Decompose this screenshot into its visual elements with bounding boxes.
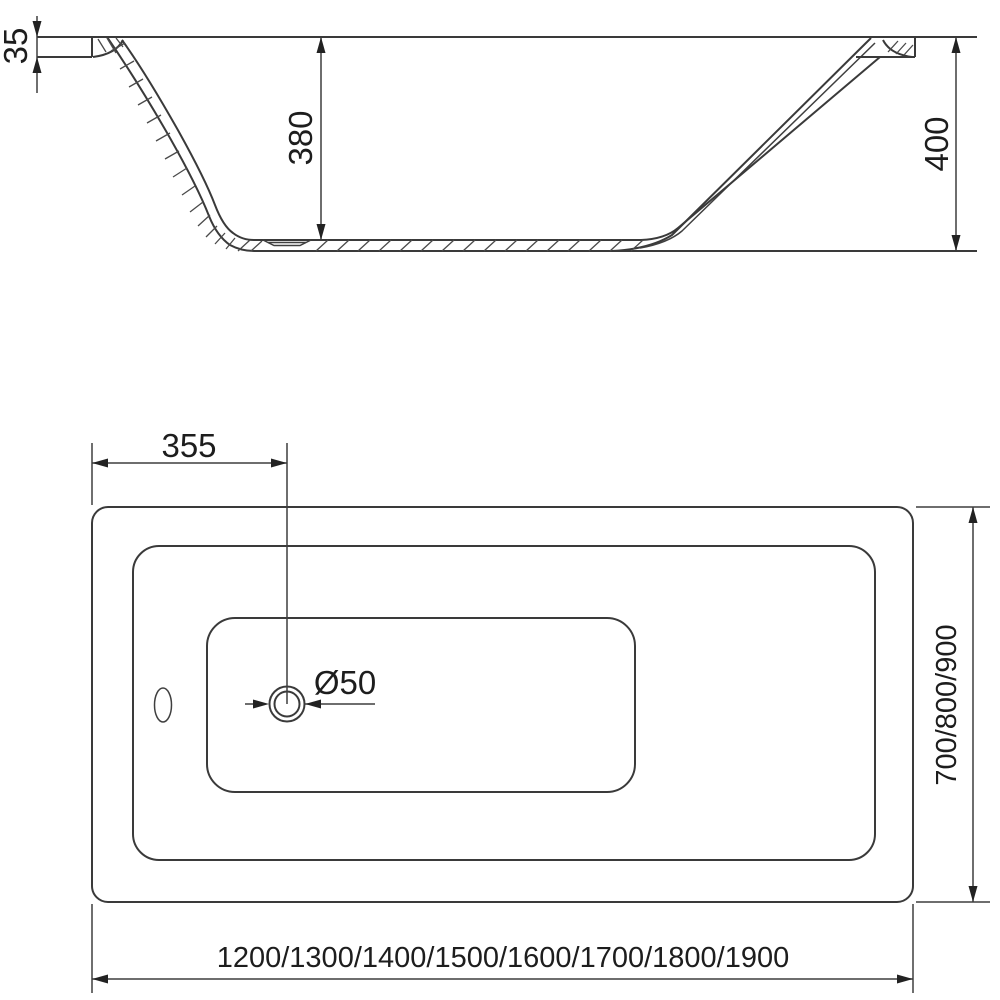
tub-outer-shell [107, 37, 977, 251]
dimension-drain-offset: 355 [92, 427, 287, 505]
tub-outer-rim-outline [92, 507, 913, 902]
section-hatching [98, 38, 913, 251]
dimension-length-options: 1200/1300/1400/1500/1600/1700/1800/1900 [92, 904, 913, 993]
overflow-hole [155, 688, 172, 722]
tub-inner-rim-outline [133, 546, 875, 860]
dimension-width-options: 700/800/900 [916, 507, 990, 902]
dimension-drain-diameter: Ø50 [245, 664, 376, 709]
dimension-rim-thickness: 35 [0, 16, 42, 93]
side-section-view: 35 380 400 [0, 16, 977, 251]
length-options-label: 1200/1300/1400/1500/1600/1700/1800/1900 [217, 942, 790, 974]
drain-offset-label: 355 [161, 427, 216, 464]
bathtub-technical-drawing: 35 380 400 [0, 0, 1000, 1000]
tub-inner-shell [122, 40, 641, 240]
inner-depth-label: 380 [282, 110, 319, 165]
dimension-overall-height: 400 [918, 37, 961, 251]
backrest-slope-outer-line [612, 38, 871, 251]
backrest-slope-middle-line [640, 43, 875, 248]
overall-height-label: 400 [918, 116, 955, 171]
tub-basin-bottom-outline [207, 618, 635, 792]
rim-right-bullnose-arc [883, 40, 912, 57]
dimension-inner-depth: 380 [282, 37, 326, 240]
width-options-label: 700/800/900 [931, 624, 963, 785]
drawing-canvas: 35 380 400 [0, 0, 1000, 1000]
drain-diameter-label: Ø50 [314, 664, 376, 701]
rim-thickness-label: 35 [0, 28, 34, 65]
plan-view: 355 Ø50 1200/1300/1400/1500/1600/1700/18… [92, 427, 990, 993]
